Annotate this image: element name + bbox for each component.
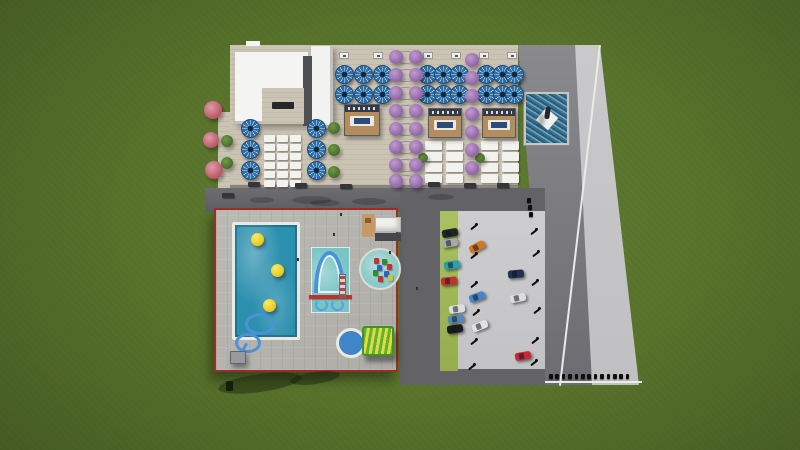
bollard xyxy=(619,374,623,379)
bollard xyxy=(528,205,532,210)
beach-umbrella xyxy=(307,119,326,138)
sun-lounger xyxy=(264,144,275,151)
kids-pool xyxy=(311,247,350,313)
sun-lounger xyxy=(277,144,288,151)
person xyxy=(333,233,335,236)
sun-lounger xyxy=(502,141,519,150)
entrance-sign xyxy=(507,52,517,59)
car-windshield xyxy=(472,244,479,251)
bollard xyxy=(562,374,566,379)
loop-water-slide xyxy=(245,313,275,335)
beach-umbrella xyxy=(307,161,326,180)
cast-shadow xyxy=(217,368,303,398)
beach-umbrella xyxy=(354,85,373,104)
sun-lounger xyxy=(290,162,301,169)
flowering-tree-purple xyxy=(409,86,423,100)
flowering-tree-purple xyxy=(389,122,403,136)
beach-umbrella xyxy=(335,85,354,104)
bench xyxy=(222,193,234,198)
entrance-sign xyxy=(479,52,489,59)
bollard xyxy=(587,374,591,379)
flowering-tree-purple xyxy=(465,161,479,175)
bollard xyxy=(555,374,559,379)
float-ball xyxy=(271,264,284,277)
aerial-render-scene xyxy=(0,0,800,450)
flowering-tree-purple xyxy=(389,50,403,64)
flowering-tree-purple xyxy=(389,158,403,172)
flowering-tree-purple xyxy=(465,107,479,121)
bush xyxy=(221,157,233,169)
bush xyxy=(221,135,233,147)
sun-lounger xyxy=(446,141,463,150)
wave-slide-tube xyxy=(331,299,344,311)
kiosk-table xyxy=(365,218,371,223)
sun-lounger xyxy=(446,174,463,183)
sun-lounger xyxy=(502,174,519,183)
flowering-tree-pink xyxy=(203,132,219,148)
bench xyxy=(464,183,476,188)
sun-lounger xyxy=(290,135,301,142)
sun-lounger xyxy=(277,171,288,178)
flowering-tree-purple xyxy=(389,174,403,188)
sun-lounger xyxy=(264,153,275,160)
sun-lounger xyxy=(425,141,442,150)
cabana-pergola xyxy=(482,108,516,138)
play-structure-piece xyxy=(388,275,393,281)
building-corridor xyxy=(303,56,312,126)
cabana-pergola xyxy=(344,104,380,136)
slide-platform xyxy=(230,351,246,364)
entrance-sign xyxy=(339,52,349,59)
parked-car xyxy=(508,269,525,278)
sun-lounger xyxy=(264,135,275,142)
bollard xyxy=(549,374,553,379)
tree-shadow xyxy=(310,200,340,206)
bench xyxy=(295,183,307,188)
person xyxy=(297,258,299,261)
flowering-tree-purple xyxy=(409,174,423,188)
sun-lounger xyxy=(277,180,288,187)
sun-lounger xyxy=(277,153,288,160)
play-structure-piece xyxy=(374,258,379,264)
bollard xyxy=(529,212,533,217)
sun-lounger xyxy=(481,141,498,150)
beach-umbrella xyxy=(307,140,326,159)
building-rooftop-block xyxy=(246,41,260,48)
bollard xyxy=(607,374,611,379)
car-windshield xyxy=(475,323,482,330)
car-windshield xyxy=(518,353,524,359)
bench xyxy=(497,183,509,188)
sun-lounger xyxy=(264,162,275,169)
sun-lounger xyxy=(290,153,301,160)
flowering-tree-purple xyxy=(465,143,479,157)
play-structure-piece xyxy=(387,264,392,270)
kiosk-base xyxy=(375,233,401,241)
car-windshield xyxy=(450,326,456,332)
cabana-mattress xyxy=(354,118,370,124)
car-windshield xyxy=(472,294,479,301)
bench xyxy=(428,182,440,187)
bench xyxy=(248,182,260,187)
building-courtyard xyxy=(262,88,304,124)
multi-lane-slide xyxy=(362,326,394,356)
flowering-tree-purple xyxy=(389,68,403,82)
cabana-pergola xyxy=(428,108,462,138)
beach-umbrella xyxy=(505,65,524,84)
sun-lounger xyxy=(481,174,498,183)
wave-slide-tube xyxy=(315,299,328,311)
beach-umbrella xyxy=(505,85,524,104)
flowering-tree-purple xyxy=(409,122,423,136)
flowering-tree-purple xyxy=(465,53,479,67)
beach-umbrella xyxy=(335,65,354,84)
tree-shadow xyxy=(250,197,274,203)
sun-lounger xyxy=(290,171,301,178)
flowering-tree-purple xyxy=(389,104,403,118)
entrance-sign xyxy=(451,52,461,59)
sun-lounger xyxy=(277,162,288,169)
flowering-tree-purple xyxy=(389,86,403,100)
play-structure-piece xyxy=(373,270,378,276)
bollard xyxy=(527,198,531,203)
car-windshield xyxy=(451,316,457,322)
sun-lounger xyxy=(502,163,519,172)
person xyxy=(389,251,391,254)
tree-shadow xyxy=(428,194,454,200)
flowering-tree-purple xyxy=(465,125,479,139)
splash-pad xyxy=(359,248,401,290)
pool-complex xyxy=(214,208,398,372)
parked-car xyxy=(441,276,458,286)
bush xyxy=(328,122,340,134)
bench xyxy=(340,184,352,189)
float-ball xyxy=(251,233,264,246)
car-windshield xyxy=(444,278,450,284)
car-windshield xyxy=(445,240,451,246)
bollard xyxy=(594,374,598,379)
car-windshield xyxy=(445,230,451,236)
flowering-tree-purple xyxy=(465,71,479,85)
bollard xyxy=(581,374,585,379)
bollard xyxy=(626,374,630,379)
bush xyxy=(328,166,340,178)
flowering-tree-purple xyxy=(409,104,423,118)
sun-lounger xyxy=(277,135,288,142)
car-windshield xyxy=(513,295,520,301)
cabana-sign xyxy=(483,109,515,116)
play-structure-piece xyxy=(378,276,383,282)
car-windshield xyxy=(447,262,453,268)
sun-lounger xyxy=(290,144,301,151)
person xyxy=(416,287,418,290)
beach-umbrella xyxy=(241,140,260,159)
bollard xyxy=(568,374,572,379)
float-ball xyxy=(263,299,276,312)
service-building-wing xyxy=(311,46,333,128)
kiosk-canopy xyxy=(375,217,401,232)
sun-lounger xyxy=(425,163,442,172)
sun-lounger xyxy=(446,163,463,172)
flowering-tree-purple xyxy=(409,50,423,64)
bush xyxy=(328,144,340,156)
sun-lounger xyxy=(502,152,519,161)
entrance-sign xyxy=(423,52,433,59)
bollard xyxy=(600,374,604,379)
cabana-mattress xyxy=(491,122,506,128)
flowering-tree-pink xyxy=(204,101,222,119)
beach-umbrella xyxy=(241,161,260,180)
sun-lounger xyxy=(264,180,275,187)
flowering-tree-purple xyxy=(389,140,403,154)
beach-umbrella xyxy=(354,65,373,84)
car-windshield xyxy=(511,271,517,277)
sun-lounger xyxy=(446,152,463,161)
bar-counter xyxy=(272,102,294,109)
sun-lounger xyxy=(264,171,275,178)
flowering-tree-purple xyxy=(409,140,423,154)
flowering-tree-purple xyxy=(409,68,423,82)
tree-shadow xyxy=(352,198,386,205)
car-windshield xyxy=(452,306,458,312)
person xyxy=(340,213,342,216)
flowering-tree-purple xyxy=(409,158,423,172)
bollard xyxy=(575,374,579,379)
cabana-sign xyxy=(345,105,379,112)
cabana-mattress xyxy=(437,122,452,128)
flowering-tree-purple xyxy=(465,89,479,103)
fountain-pool xyxy=(524,92,569,145)
slide-tower xyxy=(339,274,346,298)
cabana-sign xyxy=(429,109,461,116)
site-boundary-line-bottom xyxy=(545,381,642,383)
entrance-sign xyxy=(373,52,383,59)
bollard xyxy=(613,374,617,379)
beach-umbrella xyxy=(241,119,260,138)
sun-lounger xyxy=(481,163,498,172)
